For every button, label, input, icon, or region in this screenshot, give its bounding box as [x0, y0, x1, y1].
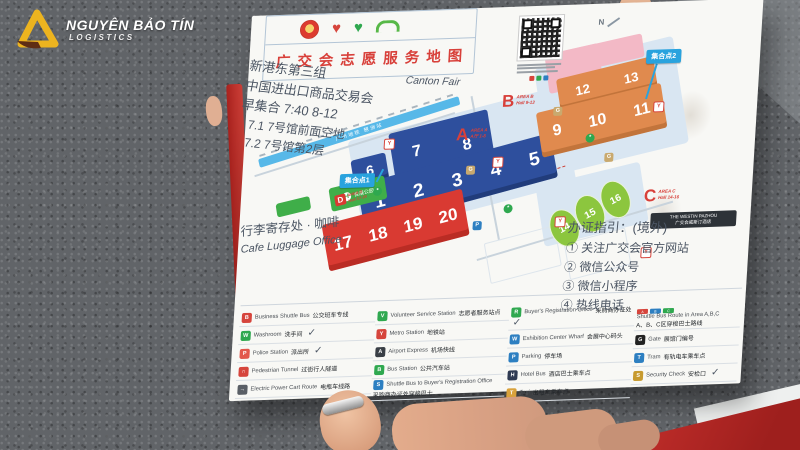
hall-19: 19 — [402, 213, 424, 237]
hall-20: 20 — [437, 204, 459, 228]
volunteer-station-icon: V — [377, 311, 388, 321]
legend-label-en: Gate — [648, 336, 661, 342]
guide-note-3: ② 微信公众号 — [563, 258, 688, 277]
area-b-label: B AREA BHall 9-13 — [502, 92, 536, 110]
shuttle-registration-legend-item: SShuttle Bus to Buyer's Registration Off… — [370, 375, 505, 402]
hotel-bus-icon: H — [507, 370, 518, 380]
bus-station-icon: B — [374, 364, 385, 374]
metro-station-icon: Y — [492, 157, 504, 168]
electric-cart-route-icon: → — [237, 384, 248, 394]
wharf-icon: W — [509, 334, 520, 344]
handwritten-check: ✓ — [314, 345, 323, 356]
legend-label-zh: 展馆门编号 — [664, 333, 695, 343]
red-heart-logo-icon: ♥ — [332, 20, 342, 35]
legend-label-en: Pedestrian Tunnel — [251, 366, 298, 374]
washroom-icon: W — [240, 330, 251, 340]
legend-label-zh: A、B、C区穿梭巴士路线 — [636, 318, 703, 329]
business-shuttle-bus-icon: B — [242, 312, 253, 322]
compass-north: N — [598, 17, 620, 27]
gate-icon: G — [604, 153, 614, 162]
guide-note-5: ④ 热线电话 — [560, 296, 685, 315]
legend-label-en: Business Shuttle Bus — [255, 312, 310, 320]
legend-label-en: Shuttle Bus to Buyer's Registration Offi… — [386, 378, 492, 388]
handwritten-check: ✓ — [711, 367, 720, 378]
metro-station-icon: Y — [653, 101, 665, 112]
guide-note-4: ③ 微信小程序 — [561, 277, 686, 296]
metro-station-icon: Y — [376, 328, 387, 338]
airport-express-icon: A — [375, 346, 386, 356]
legend-column-3: RBuyer's Registration Office采购商办证处✓WExhi… — [504, 302, 636, 402]
hall-10: 10 — [587, 110, 607, 132]
green-heart-logo-icon: ♥ — [353, 20, 363, 35]
legend-label-en: Taxi — [519, 389, 530, 395]
hall-9: 9 — [552, 121, 563, 141]
brand-subtitle: LOGISTICS — [69, 33, 194, 42]
qr-block — [515, 15, 565, 81]
legend-label-zh: 采购商办证处穿梭巴士 — [373, 388, 433, 399]
legend-column-4: ABCShuttle Bus Route in Area A,B,CA、B、C区… — [630, 305, 741, 399]
handwritten-check: ✓ — [512, 317, 521, 328]
legend-label-en: Airport Express — [388, 347, 428, 354]
handwritten-check: ✓ — [307, 327, 316, 338]
guide-note-1: 办证指引：(境外) — [567, 218, 692, 239]
legend-column-2: VVolunteer Service Station志愿者服务站点YMetro … — [370, 303, 510, 407]
hall-13: 13 — [623, 68, 640, 86]
metro-station-icon: Y — [554, 216, 566, 227]
left-hand-finger — [204, 95, 223, 127]
legend-label-zh: 公交班车专线 — [312, 309, 349, 319]
map-paper: ♥ ♥ 广交会志愿服务地图 N 新港东第三组中国进出口商品交易会早集合 7:40… — [229, 0, 764, 401]
green-space — [275, 196, 311, 218]
legend-label-zh: 志愿者服务站点 — [458, 307, 501, 317]
legend-label-zh: 机场快线 — [431, 344, 456, 354]
legend-label-zh: 公共汽车站 — [420, 363, 451, 373]
area-c-label: C AREA CHall 14-16 — [643, 186, 679, 204]
gate-icon: G — [635, 334, 646, 344]
volunteer-station-icon: * — [503, 204, 513, 213]
legend-label-zh: 过街行人隧道 — [301, 364, 338, 374]
buyers-registration-icon: R — [511, 307, 522, 317]
hall-18: 18 — [367, 223, 389, 247]
legend-label-zh: 有轨电车乘车点 — [663, 351, 706, 361]
parking-icon: P — [508, 352, 519, 362]
parking-icon: P — [472, 221, 482, 230]
canton-fair-note: Canton Fair — [405, 74, 461, 88]
police-station-icon: P — [239, 348, 250, 358]
logistics-watermark: NGUYÊN BẢO TÍN LOGISTICS — [14, 8, 194, 50]
legend-label-en: Electric Power Cart Route — [250, 384, 317, 392]
legend-label-zh: 洗手间 — [284, 329, 303, 339]
legend-label-zh: 地铁站 — [427, 327, 446, 337]
tram-icon: T — [634, 352, 645, 362]
legend-label-en: Parking — [521, 353, 541, 360]
hall-12: 12 — [574, 80, 591, 98]
qr-emblem-icon — [529, 75, 548, 81]
legend-label-zh: 安检口 — [688, 369, 707, 379]
legend-label-en: Police Station — [252, 349, 288, 356]
legend-label-en: Hotel Bus — [520, 371, 545, 378]
gate-icon: G — [553, 107, 563, 116]
triangle-logo-icon — [14, 8, 60, 50]
legend-label-zh: 出租车乘车点 — [532, 386, 569, 396]
legend-label-en: Tram — [647, 354, 661, 360]
legend-label-en: Exhibition Center Wharf — [523, 334, 585, 342]
security-check-icon: S — [633, 370, 644, 380]
compass-label: N — [598, 18, 604, 27]
legend-label-en: Security Check — [646, 371, 685, 378]
hall-5: 5 — [527, 148, 541, 172]
qr-code — [517, 15, 564, 60]
legend-label-zh: 会展中心码头 — [587, 331, 624, 341]
legend-label-en: Volunteer Service Station — [390, 310, 455, 318]
qr-caption-lines — [517, 61, 562, 75]
bridge-logo-icon — [375, 20, 400, 33]
guide-note-2: ① 关注广交会官方网站 — [565, 239, 690, 258]
photo-scene: NGUYÊN BẢO TÍN LOGISTICS ♥ ♥ 广交会志愿服务地图 — [0, 0, 800, 450]
legend-label-en: Metro Station — [389, 329, 424, 336]
security-check-legend-item: SSecurity Check安检口✓ — [631, 363, 738, 385]
meeting-point-1-badge: 集合点1 — [339, 173, 375, 188]
legend-label-en: Washroom — [254, 331, 282, 338]
meeting-point-2-badge: 集合点2 — [646, 49, 682, 64]
hall-11: 11 — [632, 100, 651, 122]
shuttle-registration-icon: S — [373, 380, 384, 390]
legend-label-zh: 停车场 — [544, 351, 563, 361]
legend-label-zh: 派出所 — [291, 347, 310, 357]
youth-league-badge-icon — [299, 19, 319, 39]
badge-guide-notes: 办证指引：(境外)① 关注广交会官方网站② 微信公众号③ 微信小程序④ 热线电话 — [560, 218, 692, 315]
brand-name: NGUYÊN BẢO TÍN — [66, 17, 194, 33]
legend-label-zh: 酒店巴士乘车点 — [548, 368, 591, 378]
pedestrian-tunnel-icon: ∩ — [238, 366, 249, 376]
brand-text: NGUYÊN BẢO TÍN LOGISTICS — [66, 17, 194, 42]
legend-label-en: Bus Station — [387, 365, 417, 372]
